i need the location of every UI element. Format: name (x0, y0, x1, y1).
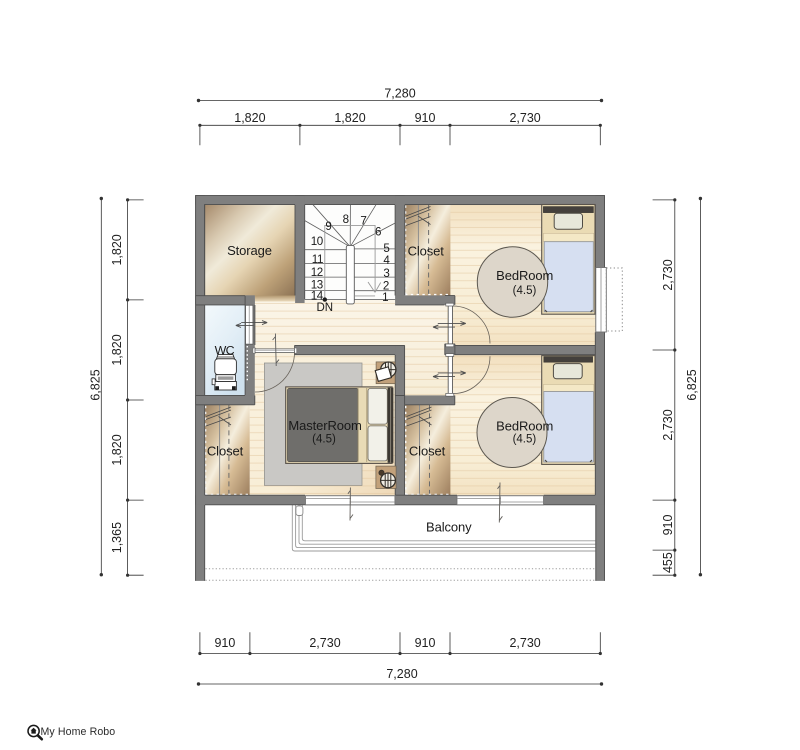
svg-text:4: 4 (383, 254, 390, 267)
svg-text:11: 11 (312, 253, 323, 266)
svg-text:6: 6 (375, 226, 381, 239)
svg-text:6,825: 6,825 (88, 369, 102, 400)
svg-text:(4.5): (4.5) (513, 285, 537, 297)
svg-text:2,730: 2,730 (309, 636, 340, 650)
svg-text:2,730: 2,730 (661, 259, 675, 290)
svg-text:910: 910 (415, 636, 436, 650)
svg-text:(4.5): (4.5) (513, 434, 537, 446)
svg-text:(4.5): (4.5) (312, 434, 336, 446)
svg-text:Balcony: Balcony (426, 520, 472, 535)
svg-text:Closet: Closet (408, 244, 445, 259)
svg-text:14: 14 (311, 290, 324, 303)
svg-text:1: 1 (382, 291, 388, 304)
svg-text:Storage: Storage (227, 243, 272, 258)
svg-text:7,280: 7,280 (384, 87, 415, 101)
svg-text:BedRoom: BedRoom (496, 268, 553, 283)
svg-text:8: 8 (343, 213, 349, 226)
svg-text:3: 3 (383, 267, 389, 280)
svg-text:2,730: 2,730 (661, 409, 675, 440)
svg-text:1,820: 1,820 (334, 111, 365, 125)
svg-text:12: 12 (311, 266, 323, 279)
svg-text:9: 9 (325, 220, 331, 233)
svg-text:DN: DN (316, 302, 333, 314)
svg-text:6,825: 6,825 (685, 369, 699, 400)
svg-text:My Home Robo: My Home Robo (41, 726, 116, 738)
svg-text:1,820: 1,820 (234, 111, 265, 125)
svg-text:910: 910 (415, 111, 436, 125)
svg-text:1,820: 1,820 (110, 234, 124, 265)
svg-text:1,820: 1,820 (110, 334, 124, 365)
svg-text:MasterRoom: MasterRoom (288, 418, 361, 433)
svg-text:455: 455 (661, 552, 675, 573)
svg-text:1,365: 1,365 (110, 522, 124, 553)
svg-text:910: 910 (214, 636, 235, 650)
svg-text:Closet: Closet (409, 444, 446, 459)
svg-text:Closet: Closet (207, 444, 244, 459)
svg-text:910: 910 (661, 515, 675, 536)
svg-text:1,820: 1,820 (110, 434, 124, 465)
svg-text:7: 7 (360, 215, 366, 228)
svg-text:10: 10 (311, 235, 323, 248)
svg-text:7,280: 7,280 (386, 667, 417, 681)
svg-text:2,730: 2,730 (509, 111, 540, 125)
svg-text:WC: WC (215, 343, 235, 357)
svg-text:2,730: 2,730 (509, 636, 540, 650)
svg-text:BedRoom: BedRoom (496, 419, 553, 434)
